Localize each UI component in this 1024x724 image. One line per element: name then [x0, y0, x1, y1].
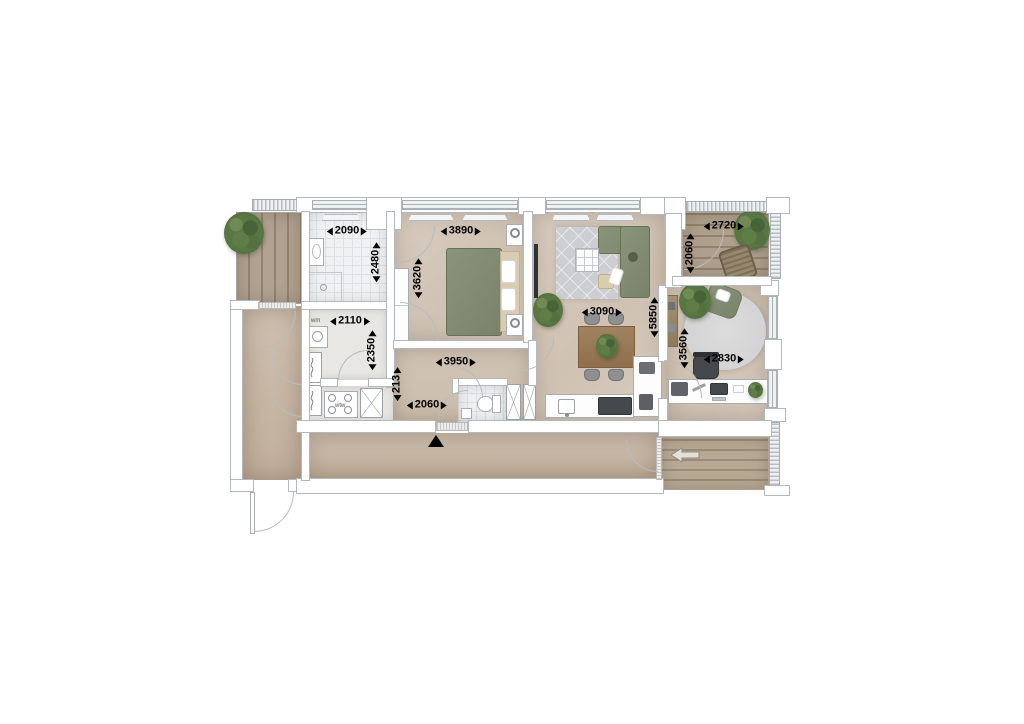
wall: [393, 340, 535, 349]
pillow: [501, 288, 516, 311]
appliance-icon: [639, 394, 653, 410]
dim-arrow-left-icon: [330, 317, 336, 325]
dim-arrow-left-icon: [368, 364, 376, 370]
dim-arrow-left-icon: [650, 331, 658, 337]
exterior-wall-bottom: [230, 479, 254, 492]
plant: [748, 382, 763, 398]
dim-terrace-depth: 2060: [685, 233, 696, 273]
dim-arrow-right-icon: [738, 222, 744, 230]
window: [312, 200, 367, 210]
pillow: [501, 260, 516, 283]
shaft-x-icon: [360, 388, 383, 418]
north-entry-marker-icon: [428, 435, 444, 447]
wall: [230, 300, 260, 310]
dim-arrow-right-icon: [650, 297, 658, 303]
kitchen-sink: [558, 399, 575, 414]
wall: [468, 420, 664, 433]
window: [546, 200, 640, 210]
tree: [224, 212, 264, 254]
lamp-icon: [510, 228, 520, 238]
dim-arrow-right-icon: [393, 367, 401, 373]
plant: [596, 334, 618, 358]
dim-arrow-right-icon: [441, 401, 447, 409]
corner-block: [766, 197, 790, 214]
wall: [301, 211, 310, 481]
wall: [658, 398, 668, 422]
dim-study-depth: 3560: [679, 328, 690, 368]
vent-icon: [408, 214, 454, 221]
dim-arrow-left-icon: [407, 401, 413, 409]
dim-arrow-right-icon: [616, 308, 622, 316]
cabinet-item: [668, 324, 675, 332]
wall: [296, 420, 436, 433]
washing-machine-label: wm: [311, 318, 320, 324]
dining-chair: [608, 369, 624, 381]
wall: [672, 276, 772, 286]
wall: [320, 378, 338, 387]
wall: [658, 285, 668, 362]
wall: [301, 301, 395, 310]
dim-study-width: 2830: [704, 354, 744, 365]
dim-utility-width: 2110: [330, 316, 370, 327]
dim-arrow-right-icon: [414, 258, 422, 264]
dim-utility-depth: 2350: [367, 330, 378, 370]
plant: [533, 293, 563, 327]
dim-arrow-left-icon: [680, 362, 688, 368]
dim-arrow-left-icon: [436, 358, 442, 366]
keyboard: [712, 397, 726, 401]
dim-arrow-left-icon: [582, 308, 588, 316]
dim-entrance-width: 2060: [407, 400, 447, 411]
wall: [523, 211, 533, 343]
dim-arrow-right-icon: [738, 355, 744, 363]
exterior-wall-bottom: [296, 478, 664, 494]
dim-bedroom-depth: 3620: [413, 258, 424, 298]
dim-bathroom-width: 2090: [327, 226, 367, 237]
pier: [366, 197, 402, 230]
vent-icon: [462, 214, 508, 221]
shaft-x-icon: [506, 384, 521, 420]
shaft-x-icon: [523, 384, 536, 420]
appliance-icon: [639, 362, 655, 374]
dim-living-width: 3090: [582, 307, 622, 318]
plant: [679, 283, 711, 319]
dim-arrow-right-icon: [364, 317, 370, 325]
laptop: [710, 383, 728, 395]
wall: [658, 420, 772, 437]
railing: [686, 201, 768, 212]
toilet-bowl: [477, 396, 493, 412]
window: [402, 200, 518, 210]
vent-icon: [596, 214, 634, 221]
dim-arrow-right-icon: [686, 233, 694, 239]
cooktop: [598, 397, 632, 415]
wtw-dial-icon: [328, 394, 336, 402]
dim-arrow-right-icon: [680, 328, 688, 334]
dim-arrow-left-icon: [414, 292, 422, 298]
dim-arrow-left-icon: [372, 276, 380, 282]
corridor-floor: [302, 433, 660, 478]
sofa: [620, 226, 650, 298]
entry-arrow-icon: [670, 447, 700, 463]
dim-arrow-left-icon: [393, 395, 401, 401]
pier: [764, 339, 782, 370]
cabinet-item: [668, 302, 675, 310]
entrance-threshold: [436, 422, 468, 431]
dim-terrace-width: 2720: [704, 221, 744, 232]
dim-arrow-left-icon: [441, 227, 447, 235]
dim-bathroom-depth: 2480: [371, 242, 382, 282]
dim-arrow-left-icon: [704, 222, 710, 230]
coffee-table: [575, 248, 599, 272]
dim-hall-width: 3950: [436, 357, 476, 368]
corner-block: [764, 485, 790, 496]
dim-arrow-right-icon: [361, 227, 367, 235]
dining-chair: [584, 369, 600, 381]
dim-hall-niche: 213: [392, 367, 403, 401]
dim-living-depth: 5850: [649, 297, 660, 337]
dim-arrow-right-icon: [470, 358, 476, 366]
dim-arrow-right-icon: [475, 227, 481, 235]
bed: [446, 248, 502, 336]
dim-arrow-right-icon: [372, 242, 380, 248]
exterior-wall-left: [230, 305, 243, 487]
dim-arrow-left-icon: [686, 267, 694, 273]
washbasin-bowl-icon: [312, 244, 321, 259]
paper: [733, 385, 744, 393]
sofa-cushion: [628, 252, 638, 262]
vent-icon: [322, 214, 360, 221]
terrace-door-threshold: [258, 302, 296, 309]
window: [767, 370, 778, 408]
entrance-door-arc: [254, 492, 294, 532]
lamp-icon: [510, 318, 520, 328]
tv: [534, 244, 538, 298]
vent-icon: [552, 214, 590, 221]
dim-bedroom-width: 3890: [441, 226, 481, 237]
deck-bottom-right-floor: [660, 437, 769, 490]
dim-arrow-left-icon: [327, 227, 333, 235]
dim-arrow-right-icon: [368, 330, 376, 336]
wall: [386, 211, 395, 388]
wtw-dial-icon: [344, 394, 352, 402]
dim-arrow-left-icon: [704, 355, 710, 363]
entrance-door-leaf: [250, 492, 255, 534]
faucet-icon: [565, 413, 569, 417]
shower-drain-icon: [320, 284, 327, 291]
toilet-cistern: [492, 395, 501, 413]
floor-plan: wm wtw: [0, 0, 1024, 724]
railing: [770, 213, 781, 279]
washing-machine-door-icon: [312, 331, 323, 342]
heat-recovery-label: wtw: [335, 403, 345, 409]
window: [767, 296, 778, 339]
